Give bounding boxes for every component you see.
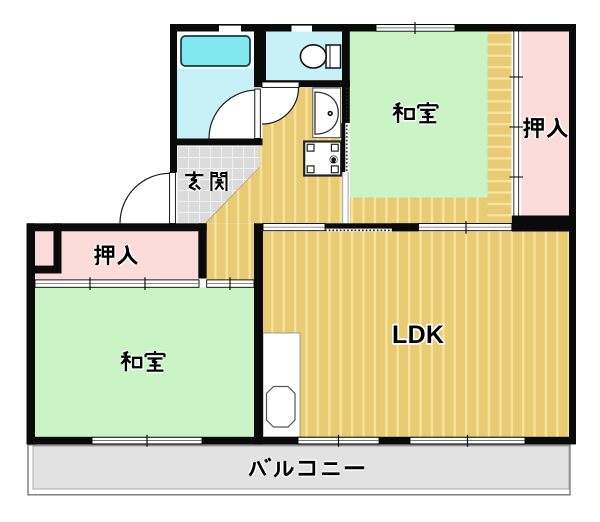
- svg-text:LDK: LDK: [392, 321, 444, 349]
